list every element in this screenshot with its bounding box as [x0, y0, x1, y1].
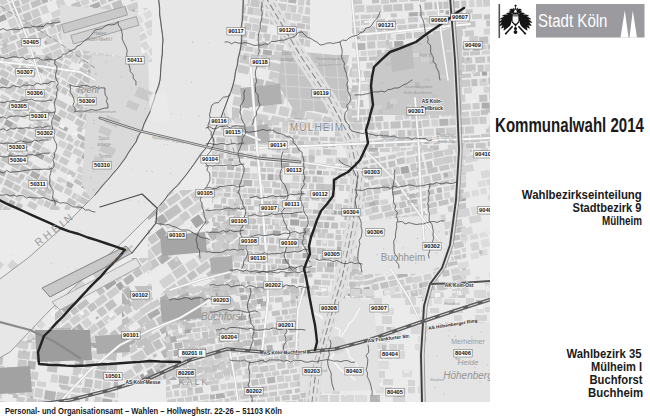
svg-text:Gewerbegebiet: Gewerbegebiet	[316, 56, 345, 61]
svg-text:50306: 50306	[27, 90, 43, 96]
svg-text:50309: 50309	[79, 98, 95, 104]
svg-text:Hafen: Hafen	[94, 31, 107, 36]
svg-text:Köln-Niehl I: Köln-Niehl I	[88, 37, 113, 42]
svg-text:Kommunalwahl 2014: Kommunalwahl 2014	[495, 114, 645, 136]
svg-text:anlage: anlage	[280, 57, 294, 62]
svg-text:90103: 90103	[169, 232, 185, 238]
svg-text:90204: 90204	[221, 334, 238, 340]
svg-text:Mülheim: Mülheim	[602, 213, 642, 228]
svg-text:80403: 80403	[346, 368, 362, 374]
svg-text:50310: 50310	[94, 162, 110, 168]
svg-text:Heide: Heide	[458, 358, 479, 367]
svg-text:anlage: anlage	[97, 142, 111, 147]
svg-text:90303: 90303	[364, 169, 380, 175]
svg-text:90118: 90118	[252, 59, 268, 65]
svg-text:90305: 90305	[324, 251, 340, 257]
svg-text:AS Köln-Messe: AS Köln-Messe	[126, 380, 161, 385]
svg-text:MÜLHEIM: MÜLHEIM	[290, 122, 345, 133]
svg-text:90116: 90116	[211, 118, 227, 124]
svg-text:Zwischen: Zwischen	[436, 133, 456, 138]
svg-text:80208: 80208	[178, 370, 194, 376]
svg-text:90119: 90119	[313, 90, 329, 96]
svg-text:90114: 90114	[270, 142, 286, 148]
svg-text:Schanzenstr.: Schanzenstr.	[318, 62, 342, 67]
svg-text:90306: 90306	[367, 229, 383, 235]
svg-text:90203: 90203	[213, 297, 229, 303]
svg-text:90117: 90117	[228, 28, 244, 34]
svg-text:90121: 90121	[378, 22, 394, 28]
svg-text:90104: 90104	[202, 156, 219, 162]
svg-text:Personal- und Organisationsamt: Personal- und Organisationsamt – Wahlen …	[5, 407, 282, 416]
svg-text:90201: 90201	[278, 322, 294, 328]
svg-text:90307: 90307	[371, 305, 387, 311]
svg-text:80405: 80405	[387, 389, 403, 395]
svg-text:Sport: Sport	[99, 136, 111, 141]
svg-text:Koelnmesse: Koelnmesse	[49, 326, 72, 331]
svg-text:Stadt Köln: Stadt Köln	[538, 11, 608, 31]
svg-text:90308: 90308	[321, 305, 337, 311]
svg-text:Tennis: Tennis	[98, 154, 112, 159]
svg-text:50305: 50305	[11, 103, 27, 109]
svg-text:Buchforst: Buchforst	[201, 311, 244, 322]
svg-text:90111: 90111	[284, 201, 299, 207]
svg-text:90113: 90113	[286, 167, 302, 173]
svg-text:80406: 80406	[455, 350, 471, 356]
svg-text:Köln-Buchheim: Köln-Buchheim	[404, 90, 433, 95]
svg-text:KALK: KALK	[178, 377, 209, 387]
svg-text:90106: 90106	[231, 218, 247, 224]
svg-text:Fort XI: Fort XI	[419, 53, 433, 58]
svg-text:90202: 90202	[265, 282, 281, 288]
svg-text:90108: 90108	[241, 238, 257, 244]
svg-text:AK Köln-Ost: AK Köln-Ost	[445, 283, 474, 288]
svg-text:90112: 90112	[312, 191, 328, 197]
svg-text:90110: 90110	[250, 255, 266, 261]
svg-text:Sport: Sport	[407, 193, 419, 198]
svg-text:Buchheim: Buchheim	[588, 385, 643, 400]
svg-text:90301: 90301	[408, 108, 424, 114]
svg-text:80404: 80404	[382, 351, 399, 357]
svg-text:50301: 50301	[31, 113, 47, 119]
svg-text:90101: 90101	[123, 332, 139, 338]
svg-text:Merheimer: Merheimer	[451, 338, 485, 345]
svg-text:80203: 80203	[304, 368, 320, 374]
svg-text:Sport: Sport	[282, 51, 294, 56]
svg-text:90410: 90410	[475, 151, 491, 157]
svg-text:90409: 90409	[465, 42, 481, 48]
svg-text:90109: 90109	[281, 240, 297, 246]
svg-text:90102: 90102	[132, 292, 148, 298]
svg-text:50311: 50311	[30, 181, 46, 187]
svg-text:50304: 50304	[10, 157, 27, 163]
svg-text:platz: platz	[407, 199, 417, 204]
svg-text:90107: 90107	[261, 205, 277, 211]
svg-text:80201 II: 80201 II	[182, 350, 203, 356]
svg-text:50307: 50307	[17, 69, 33, 75]
svg-text:Behindertenzentrum: Behindertenzentrum	[78, 109, 116, 114]
svg-text:80202: 80202	[246, 388, 262, 394]
svg-text:90302: 90302	[424, 243, 440, 249]
svg-text:90115: 90115	[225, 129, 241, 135]
svg-text:Friedhof: Friedhof	[444, 301, 460, 306]
svg-text:50405: 50405	[23, 39, 39, 45]
svg-text:Buchheim: Buchheim	[381, 252, 425, 263]
svg-text:Höhenberg: Höhenberg	[443, 370, 493, 381]
svg-text:90607: 90607	[452, 14, 468, 20]
svg-text:werk Xb: werk Xb	[438, 139, 455, 144]
svg-text:Riehl: Riehl	[77, 84, 100, 95]
svg-text:Schule: Schule	[382, 136, 396, 141]
svg-text:50411: 50411	[127, 57, 143, 63]
svg-text:10501: 10501	[105, 373, 121, 379]
svg-text:50303: 50303	[9, 144, 25, 150]
svg-text:90105: 90105	[197, 190, 213, 196]
svg-text:50302: 50302	[37, 130, 53, 136]
svg-text:Gewerbegebiet: Gewerbegebiet	[404, 84, 433, 89]
svg-text:90120: 90120	[279, 27, 295, 33]
svg-text:90304: 90304	[343, 209, 360, 215]
svg-text:90606: 90606	[431, 17, 447, 23]
svg-text:AS Köln-: AS Köln-	[422, 99, 443, 104]
